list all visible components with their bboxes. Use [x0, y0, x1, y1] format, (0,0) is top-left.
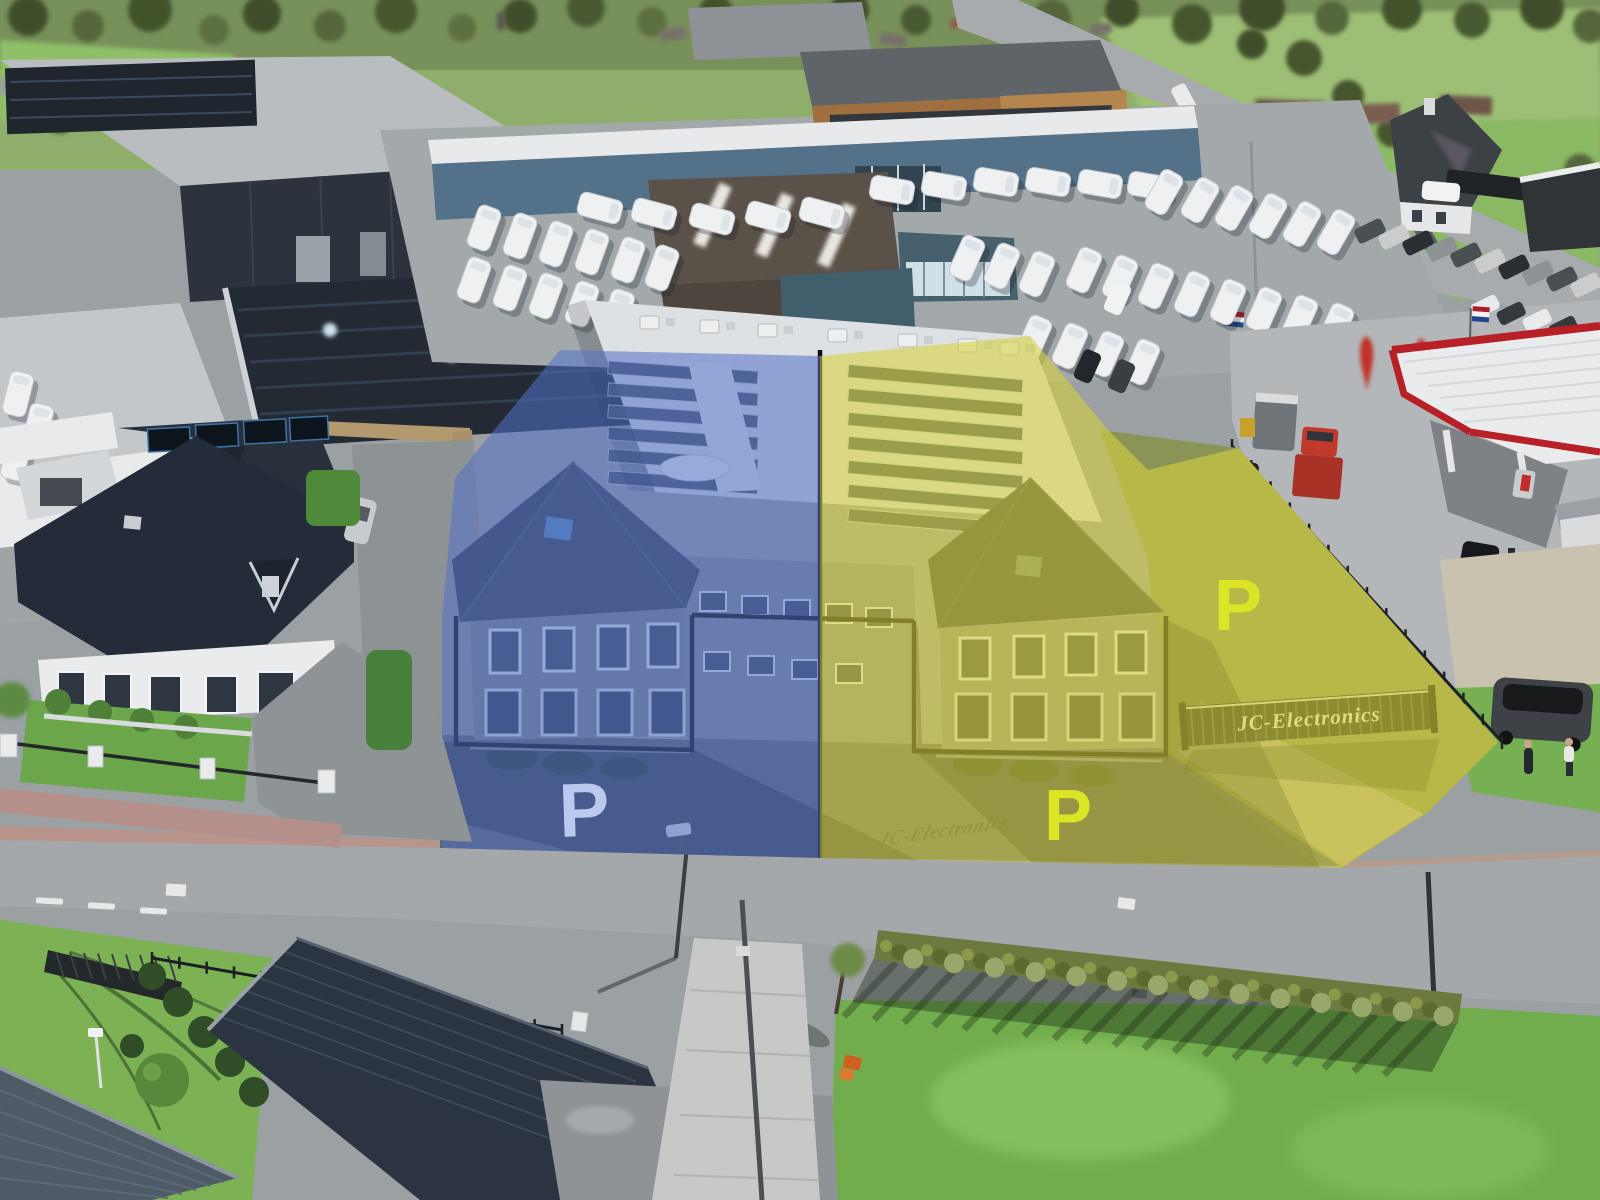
parking-p-yellow-lot: P [1044, 776, 1092, 856]
aerial-photo: JC-Electronics JC-Electronics P [0, 0, 1600, 1200]
parking-p-yellow-field: P [1214, 566, 1262, 646]
parking-p-blue: P [557, 767, 611, 854]
overlay-blue-unit [442, 350, 820, 858]
